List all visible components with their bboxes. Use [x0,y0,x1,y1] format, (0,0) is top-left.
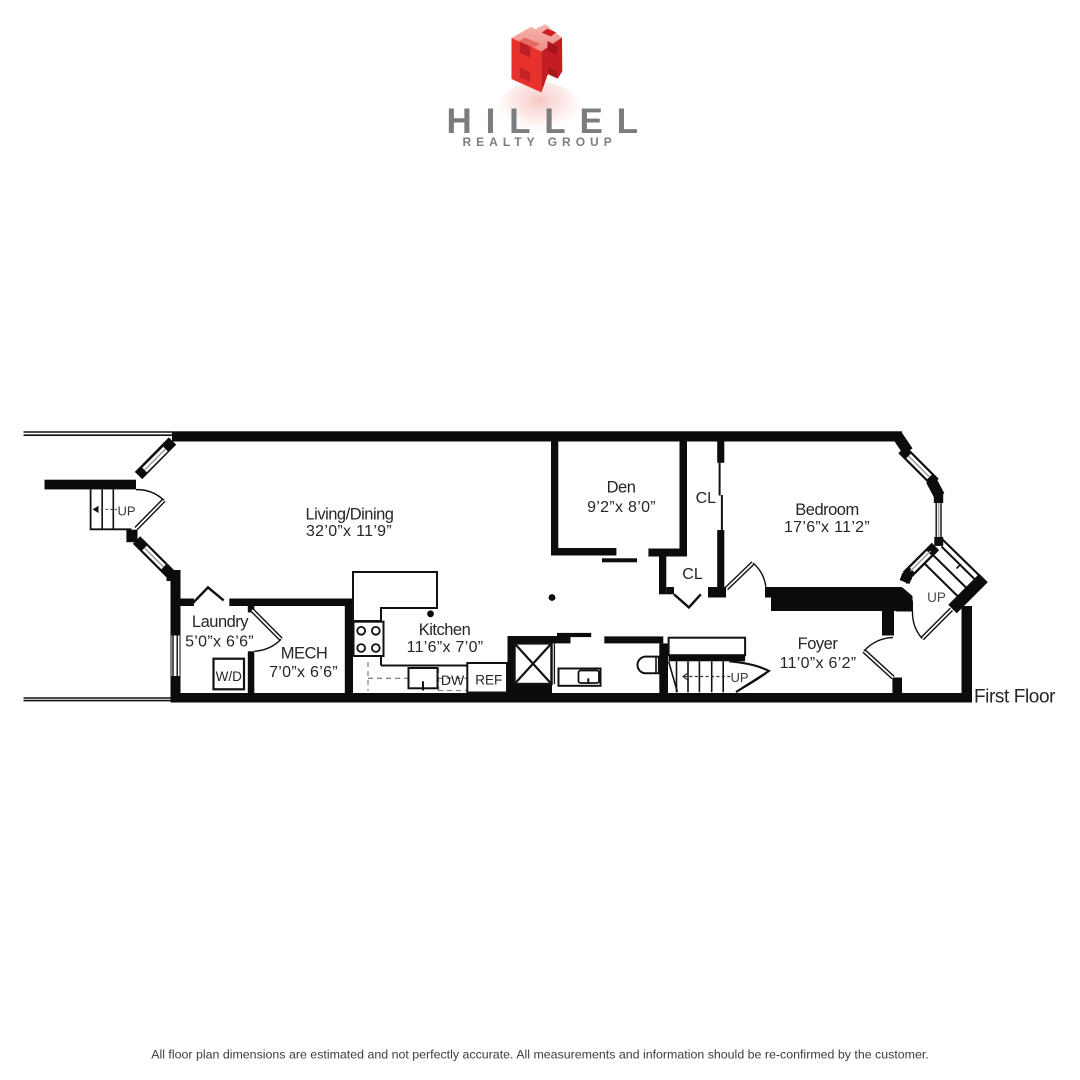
svg-text:UP: UP [730,670,748,685]
svg-text:REF: REF [475,673,502,688]
svg-text:11’6”x 7’0”: 11’6”x 7’0” [407,639,484,656]
svg-text:DW: DW [441,672,465,688]
svg-text:All floor plan dimensions are: All floor plan dimensions are estimated … [151,1047,929,1061]
svg-text:9’2”x 8’0”: 9’2”x 8’0” [587,499,656,516]
svg-text:UP: UP [117,504,135,519]
svg-text:First Floor: First Floor [974,687,1056,708]
svg-text:Bedroom: Bedroom [795,501,858,519]
svg-text:W/D: W/D [216,669,242,684]
svg-text:11’0”x 6’2”: 11’0”x 6’2” [780,655,857,672]
svg-text:REALTY GROUP: REALTY GROUP [463,135,617,149]
svg-text:UP: UP [927,590,946,605]
svg-text:32’0”x 11’9”: 32’0”x 11’9” [306,523,392,540]
svg-text:Kitchen: Kitchen [419,621,471,639]
svg-text:Laundry: Laundry [192,613,249,631]
svg-text:MECH: MECH [281,645,328,663]
svg-text:7’0”x 6’6”: 7’0”x 6’6” [269,664,338,681]
svg-text:Den: Den [607,478,636,496]
svg-text:CL: CL [682,566,703,583]
svg-text:17’6”x 11’2”: 17’6”x 11’2” [784,519,870,536]
svg-text:5’0”x 6’6”: 5’0”x 6’6” [185,634,254,651]
svg-text:Living/Dining: Living/Dining [306,506,394,524]
svg-text:Foyer: Foyer [798,635,839,653]
svg-text:CL: CL [696,490,717,507]
